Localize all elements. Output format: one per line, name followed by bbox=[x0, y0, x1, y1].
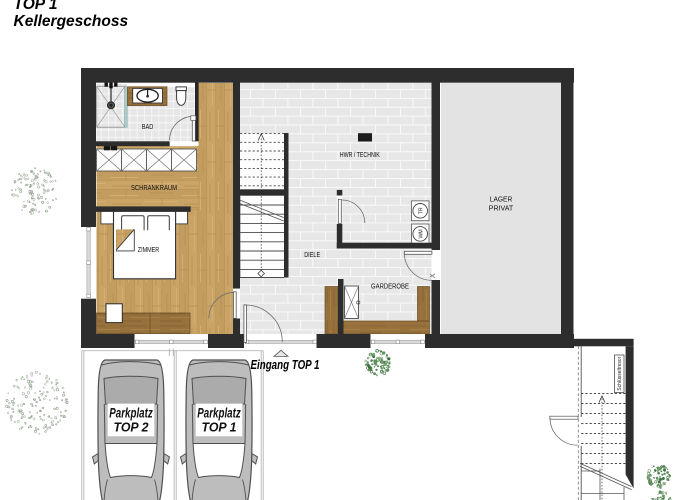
svg-text:LAGER: LAGER bbox=[490, 197, 513, 204]
svg-text:BAD: BAD bbox=[142, 122, 154, 131]
svg-text:Parkplatz: Parkplatz bbox=[197, 405, 241, 421]
svg-text:GARDEROBE: GARDEROBE bbox=[371, 281, 409, 290]
svg-text:SCHRANKRAUM: SCHRANKRAUM bbox=[131, 183, 177, 192]
svg-text:Eingang TOP 1: Eingang TOP 1 bbox=[251, 358, 320, 372]
svg-text:TOP 1: TOP 1 bbox=[202, 419, 237, 434]
svg-text:Parkplatz: Parkplatz bbox=[109, 405, 153, 421]
svg-text:Kellergeschoss: Kellergeschoss bbox=[14, 13, 129, 30]
svg-text:HWR / TECHNIK: HWR / TECHNIK bbox=[340, 150, 380, 159]
svg-text:PRIVAT: PRIVAT bbox=[489, 205, 514, 212]
svg-text:DIELE: DIELE bbox=[304, 250, 320, 259]
svg-text:Schlüsseltresor: Schlüsseltresor bbox=[617, 356, 623, 390]
svg-text:ZIMMER: ZIMMER bbox=[138, 245, 160, 254]
svg-text:TR: TR bbox=[418, 207, 424, 214]
svg-text:TOP 2: TOP 2 bbox=[114, 419, 150, 434]
svg-text:WM: WM bbox=[418, 229, 424, 238]
svg-text:TOP 1: TOP 1 bbox=[14, 0, 58, 13]
